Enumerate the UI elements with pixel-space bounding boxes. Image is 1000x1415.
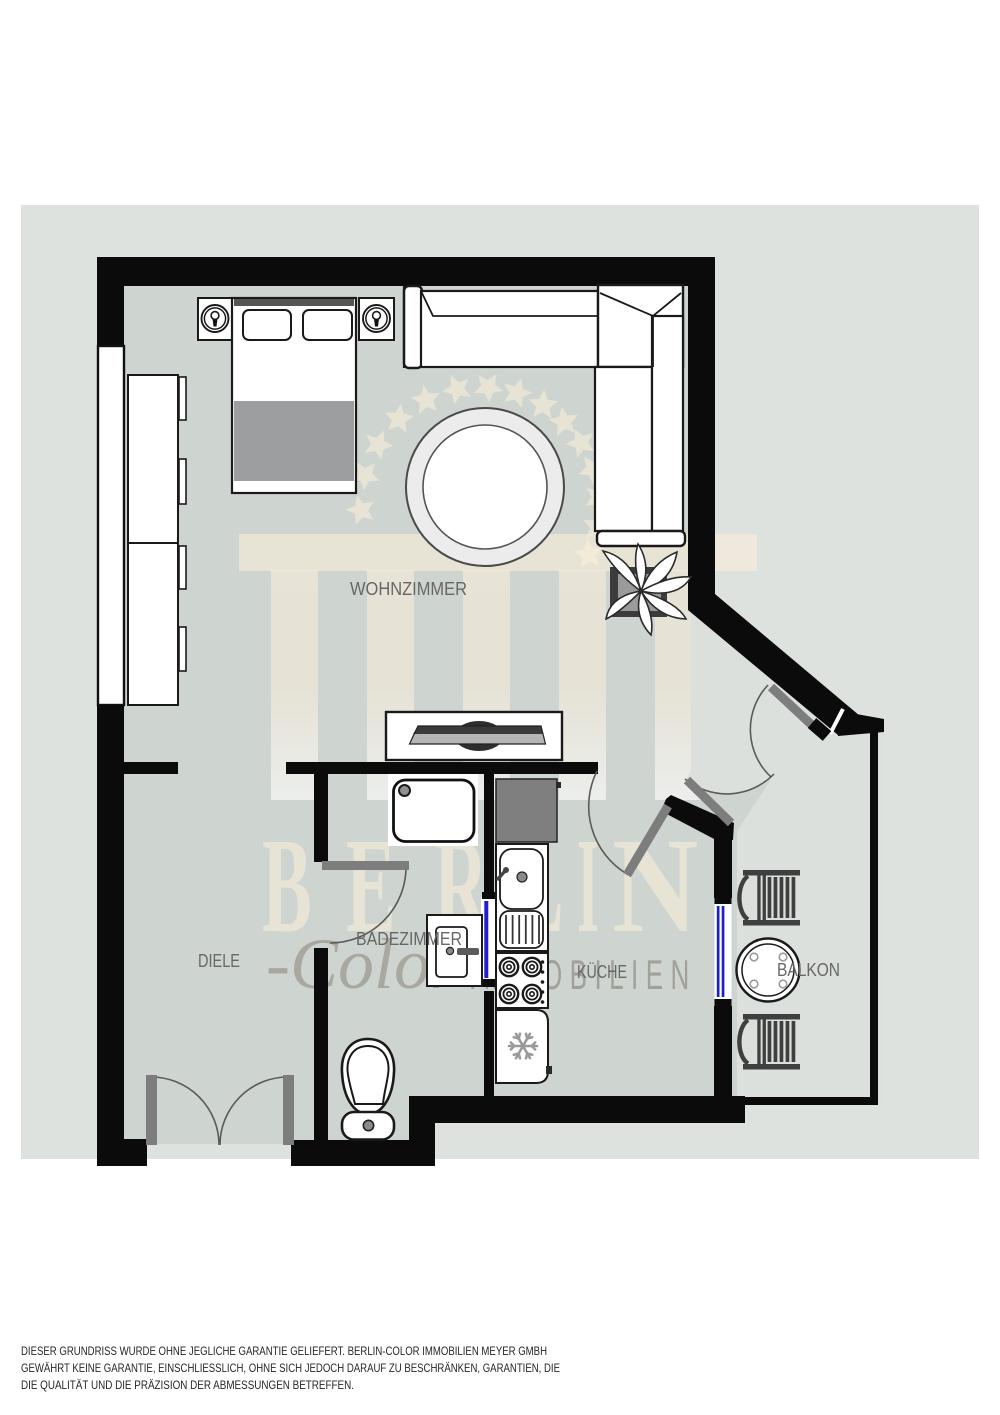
svg-text:I: I: [577, 810, 599, 961]
svg-text:BALKON: BALKON: [777, 960, 840, 980]
svg-text:DIESER GRUNDRISS WURDE OHNE JE: DIESER GRUNDRISS WURDE OHNE JEGLICHE GAR…: [21, 1345, 547, 1358]
svg-text:BADEZIMMER: BADEZIMMER: [356, 929, 462, 949]
svg-text:DIE QUALITÄT UND DIE PRÄZISION: DIE QUALITÄT UND DIE PRÄZISION DER ABMES…: [21, 1379, 354, 1392]
svg-text:DIELE: DIELE: [198, 951, 240, 971]
svg-text:WOHNZIMMER: WOHNZIMMER: [350, 579, 467, 599]
svg-text:KÜCHE: KÜCHE: [577, 962, 627, 982]
svg-text:GEWÄHRT KEINE GARANTIE, EINSCH: GEWÄHRT KEINE GARANTIE, EINSCHLIESSLICH,…: [21, 1362, 560, 1375]
